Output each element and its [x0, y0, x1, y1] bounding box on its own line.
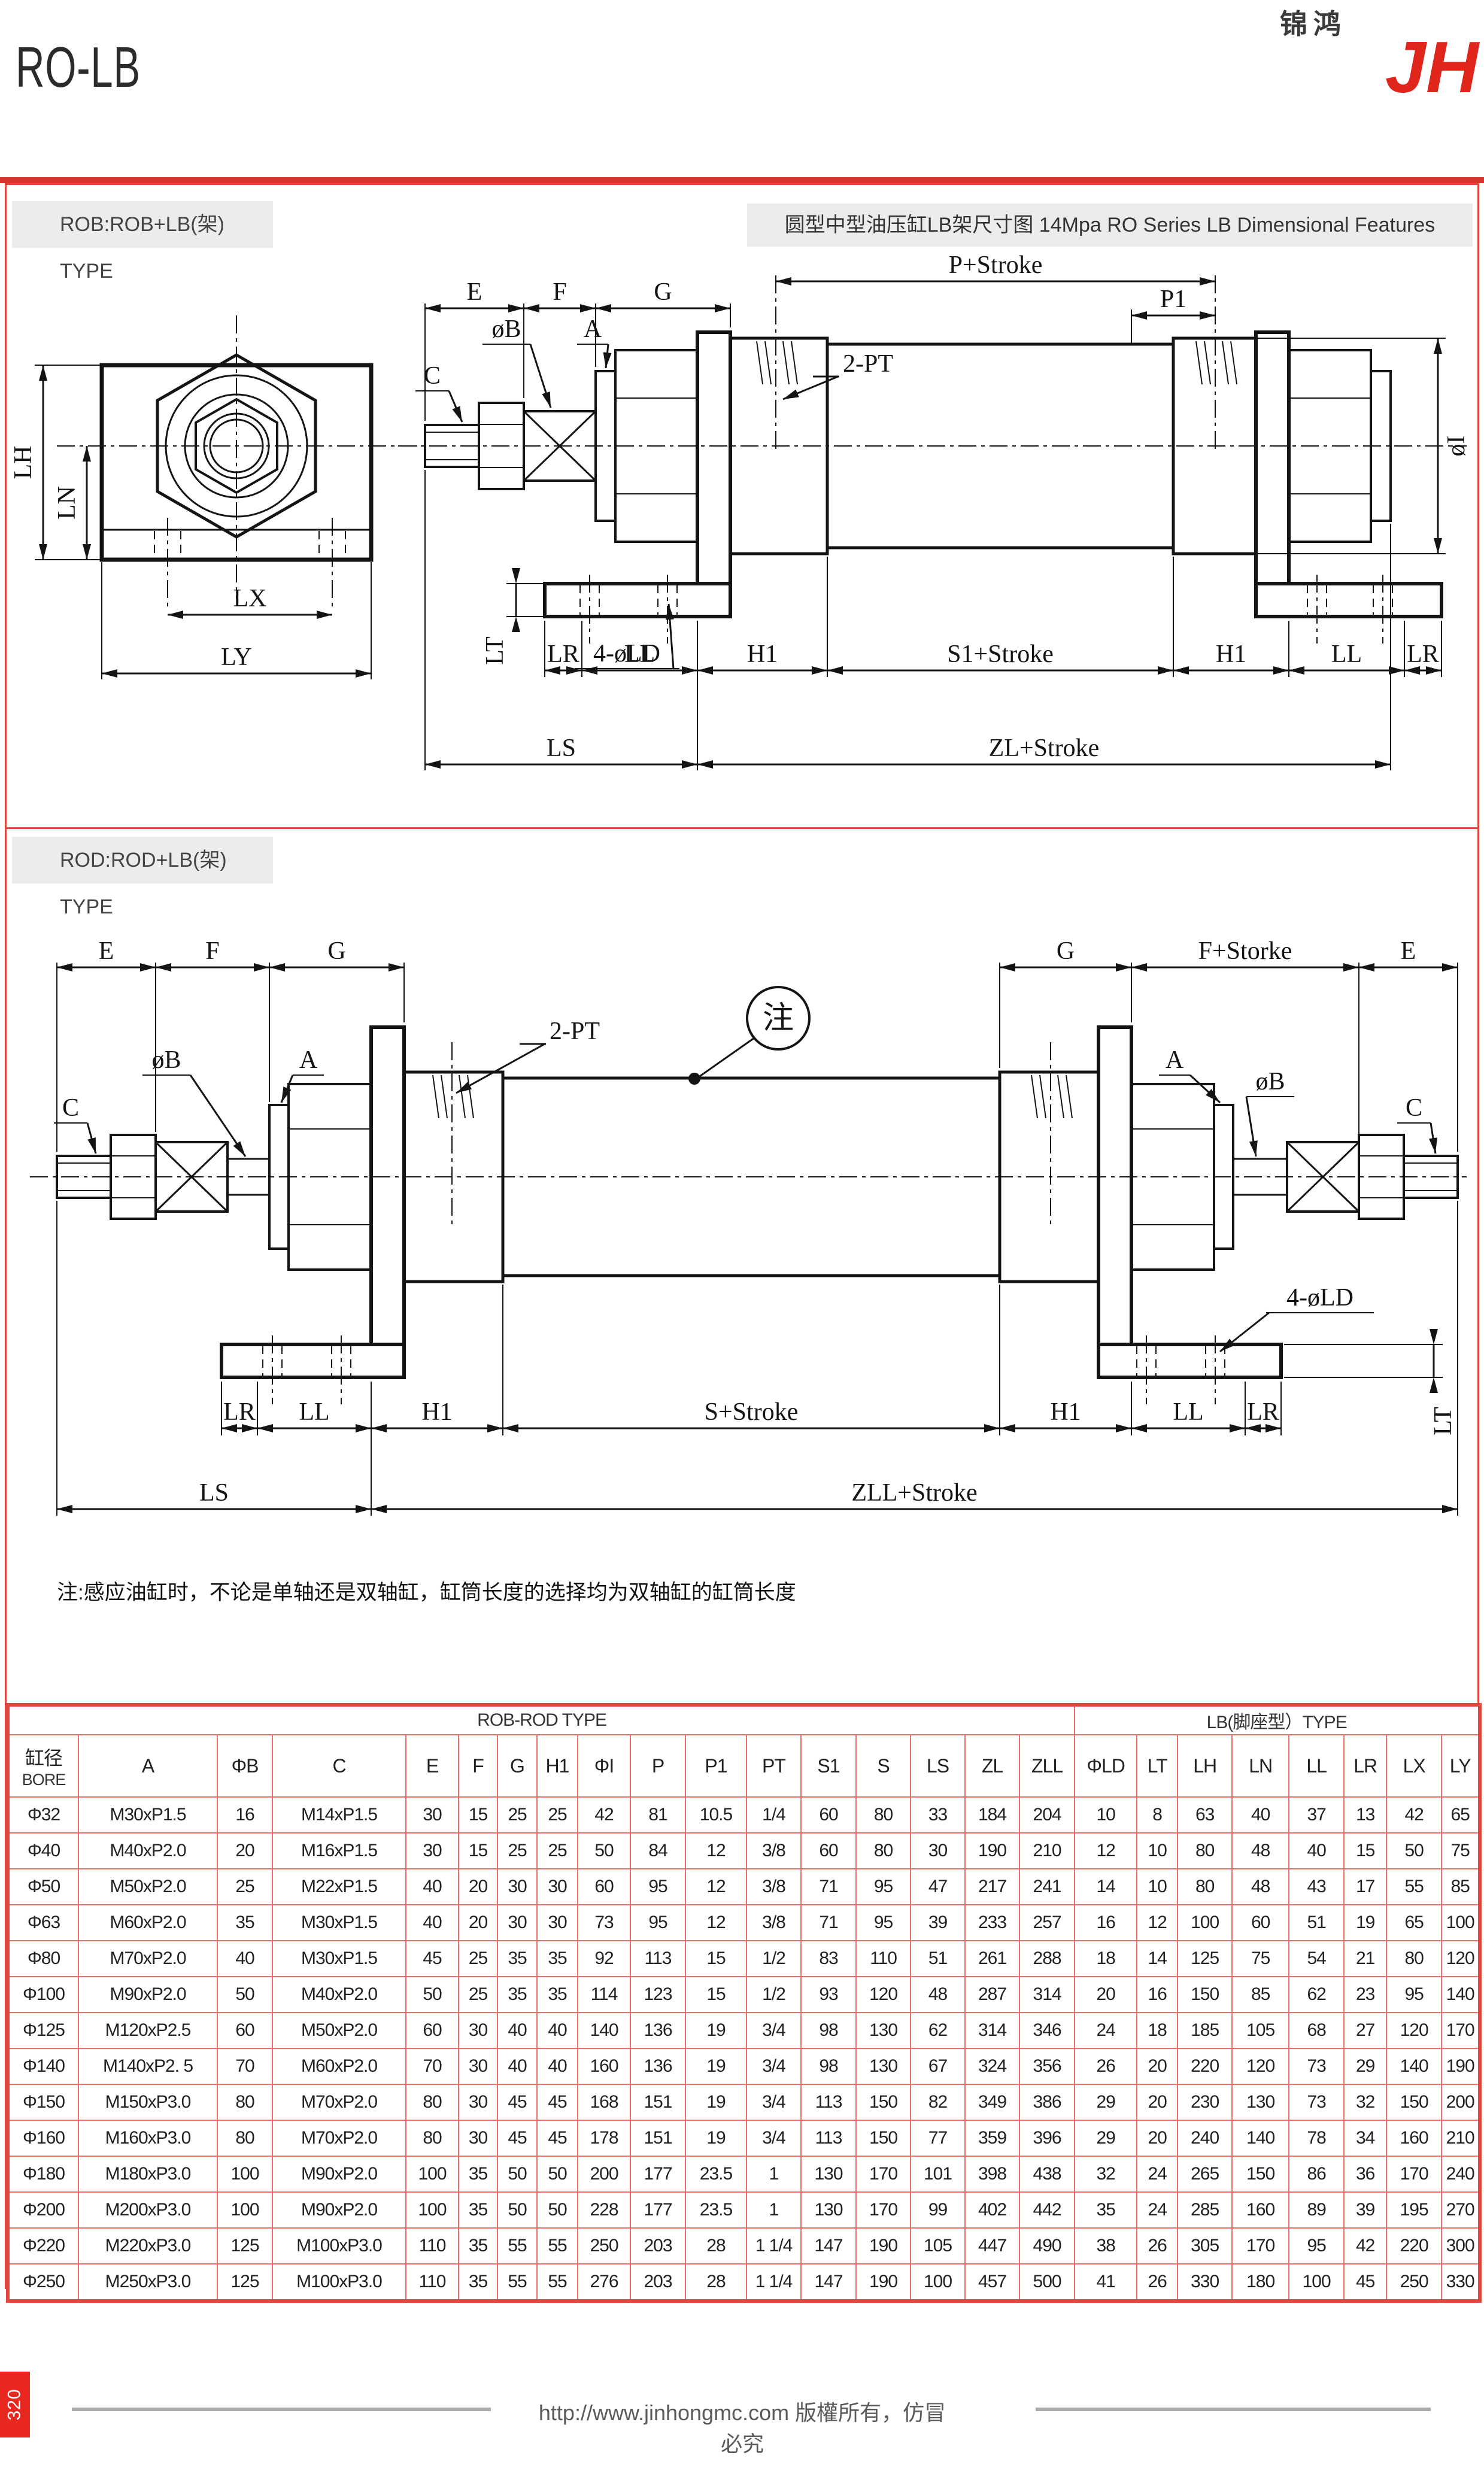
- table-cell: 99: [911, 2192, 965, 2228]
- table-cell: 177: [630, 2156, 685, 2192]
- table-cell: 30: [537, 1869, 578, 1905]
- table-cell: 51: [1289, 1905, 1344, 1941]
- table-cell: 62: [911, 2012, 965, 2048]
- dim-label: LR: [547, 640, 579, 668]
- table-cell: 98: [801, 2048, 856, 2084]
- table-cell: M120xP2.5: [78, 2012, 217, 2048]
- footer-rule-left: [72, 2408, 491, 2411]
- dim-label: C: [62, 1094, 79, 1122]
- table-cell: 130: [1232, 2084, 1289, 2120]
- table-cell: 217: [965, 1869, 1019, 1905]
- table-cell: 184: [965, 1797, 1019, 1833]
- table-cell: 80: [856, 1797, 911, 1833]
- bore-label-cn: 缸径: [10, 1743, 78, 1771]
- table-cell: 43: [1289, 1869, 1344, 1905]
- table-cell: 39: [911, 1905, 965, 1941]
- table-cell: 68: [1289, 2012, 1344, 2048]
- table-cell: 25: [459, 1941, 497, 1977]
- dim-label: P1: [1160, 286, 1186, 313]
- table-cell: 95: [856, 1869, 911, 1905]
- table-cell: 10.5: [685, 1797, 746, 1833]
- table-cell: 10: [1075, 1797, 1137, 1833]
- table-cell: Φ140: [8, 2048, 78, 2084]
- table-cell: 14: [1137, 1941, 1178, 1977]
- table-cell: 41: [1075, 2264, 1137, 2301]
- dim-label: 注: [763, 1001, 794, 1036]
- table-cell: 40: [537, 2012, 578, 2048]
- table-cell: M220xP3.0: [78, 2228, 217, 2264]
- table-cell: 20: [459, 1869, 497, 1905]
- table-cell: 12: [685, 1869, 746, 1905]
- table-cell: 3/8: [746, 1833, 801, 1869]
- column-header: LS: [911, 1735, 965, 1797]
- table-cell: 160: [578, 2048, 630, 2084]
- table-cell: 40: [497, 2048, 537, 2084]
- table-cell: 203: [630, 2264, 685, 2301]
- table-cell: 457: [965, 2264, 1019, 2301]
- table-cell: 16: [1137, 1977, 1178, 2012]
- table-cell: 28: [685, 2264, 746, 2301]
- table-cell: 25: [497, 1833, 537, 1869]
- table-cell: 490: [1019, 2228, 1075, 2264]
- column-header: ΦI: [578, 1735, 630, 1797]
- table-cell: 40: [1289, 1833, 1344, 1869]
- table-cell: 3/8: [746, 1869, 801, 1905]
- table-cell: 63: [1178, 1797, 1232, 1833]
- table-cell: 113: [630, 1941, 685, 1977]
- table-cell: 45: [1344, 2264, 1386, 2301]
- table-cell: 60: [578, 1869, 630, 1905]
- table-cell: 170: [856, 2192, 911, 2228]
- table-cell: 23: [1344, 1977, 1386, 2012]
- table-cell: 1/2: [746, 1941, 801, 1977]
- note-text: 注:感应油缸时，不论是单轴还是双轴缸，缸筒长度的选择均为双轴缸的缸筒长度: [57, 1576, 796, 1606]
- table-cell: Φ125: [8, 2012, 78, 2048]
- table-cell: 185: [1178, 2012, 1232, 2048]
- table-cell: 125: [217, 2228, 272, 2264]
- table-cell: M60xP2.0: [272, 2048, 406, 2084]
- table-cell: 151: [630, 2120, 685, 2156]
- dim-label: H1: [421, 1398, 452, 1426]
- table-cell: M14xP1.5: [272, 1797, 406, 1833]
- table-cell: 85: [1441, 1869, 1480, 1905]
- table-cell: M100xP3.0: [272, 2264, 406, 2301]
- table-cell: 30: [459, 2012, 497, 2048]
- table-cell: 93: [801, 1977, 856, 2012]
- table-cell: 200: [1441, 2084, 1480, 2120]
- table-cell: 55: [537, 2228, 578, 2264]
- table-cell: 54: [1289, 1941, 1344, 1977]
- table-cell: 120: [856, 1977, 911, 2012]
- table-cell: 82: [911, 2084, 965, 2120]
- table-cell: 25: [459, 1977, 497, 2012]
- table-cell: M160xP3.0: [78, 2120, 217, 2156]
- dim-label: 2-PT: [550, 1018, 600, 1045]
- table-cell: M70xP2.0: [272, 2120, 406, 2156]
- table-cell: 1 1/4: [746, 2264, 801, 2301]
- dim-label: A: [1166, 1046, 1184, 1074]
- table-cell: 147: [801, 2264, 856, 2301]
- table-cell: 220: [1178, 2048, 1232, 2084]
- table-cell: 60: [801, 1797, 856, 1833]
- column-header: S: [856, 1735, 911, 1797]
- dimension-table: ROB-ROD TYPELB(脚座型）TYPE缸径BOREAΦBCEFGH1ΦI…: [6, 1703, 1482, 2303]
- table-cell: 71: [801, 1905, 856, 1941]
- table-cell: 12: [1137, 1905, 1178, 1941]
- table-cell: 50: [537, 2192, 578, 2228]
- table-row: Φ160M160xP3.080M70xP2.080304545178151193…: [8, 2120, 1480, 2156]
- table-cell: 276: [578, 2264, 630, 2301]
- table-cell: 48: [1232, 1833, 1289, 1869]
- table-cell: 190: [965, 1833, 1019, 1869]
- table-cell: 32: [1075, 2156, 1137, 2192]
- table-cell: 110: [406, 2228, 459, 2264]
- table-cell: 45: [497, 2120, 537, 2156]
- table-cell: 8: [1137, 1797, 1178, 1833]
- table-cell: 26: [1137, 2228, 1178, 2264]
- table-group-header-rob-rod: ROB-ROD TYPE: [8, 1705, 1075, 1735]
- table-cell: 110: [856, 1941, 911, 1977]
- table-cell: 120: [1441, 1941, 1480, 1977]
- table-cell: 25: [537, 1797, 578, 1833]
- table-cell: 19: [685, 2120, 746, 2156]
- table-cell: 402: [965, 2192, 1019, 2228]
- table-cell: 23.5: [685, 2192, 746, 2228]
- column-header: E: [406, 1735, 459, 1797]
- table-cell: 71: [801, 1869, 856, 1905]
- column-header-bore: 缸径BORE: [8, 1735, 78, 1797]
- table-cell: 17: [1344, 1869, 1386, 1905]
- table-cell: 40: [497, 2012, 537, 2048]
- dim-label: E: [467, 278, 482, 306]
- table-cell: 35: [497, 1941, 537, 1977]
- table-cell: 30: [459, 2048, 497, 2084]
- table-cell: 330: [1441, 2264, 1480, 2301]
- table-cell: Φ250: [8, 2264, 78, 2301]
- table-row: Φ125M120xP2.560M50xP2.060304040140136193…: [8, 2012, 1480, 2048]
- table-cell: M40xP2.0: [272, 1977, 406, 2012]
- table-cell: 438: [1019, 2156, 1075, 2192]
- table-cell: 80: [217, 2120, 272, 2156]
- table-cell: 123: [630, 1977, 685, 2012]
- dim-label: LL: [299, 1398, 329, 1426]
- table-cell: 60: [406, 2012, 459, 2048]
- dim-label: øB: [151, 1046, 181, 1074]
- table-cell: M200xP3.0: [78, 2192, 217, 2228]
- table-cell: 15: [1344, 1833, 1386, 1869]
- column-header: F: [459, 1735, 497, 1797]
- table-cell: Φ200: [8, 2192, 78, 2228]
- table-cell: 50: [497, 2156, 537, 2192]
- table-cell: 26: [1075, 2048, 1137, 2084]
- table-cell: 42: [578, 1797, 630, 1833]
- table-cell: 113: [801, 2120, 856, 2156]
- table-cell: 73: [1289, 2048, 1344, 2084]
- table-cell: 21: [1344, 1941, 1386, 1977]
- dim-label: LY: [221, 643, 252, 671]
- table-cell: 98: [801, 2012, 856, 2048]
- table-cell: 45: [497, 2084, 537, 2120]
- table-row: Φ150M150xP3.080M70xP2.080304545168151193…: [8, 2084, 1480, 2120]
- table-cell: 15: [685, 1977, 746, 2012]
- table-cell: 65: [1441, 1797, 1480, 1833]
- section-label-rod: ROD:ROD+LB(架) TYPE: [12, 837, 273, 884]
- table-cell: 114: [578, 1977, 630, 2012]
- table-cell: 30: [459, 2084, 497, 2120]
- column-header: C: [272, 1735, 406, 1797]
- table-cell: 15: [459, 1797, 497, 1833]
- table-cell: Φ100: [8, 1977, 78, 2012]
- table-cell: 150: [856, 2084, 911, 2120]
- table-cell: 19: [685, 2084, 746, 2120]
- table-cell: 1: [746, 2192, 801, 2228]
- table-row: Φ63M60xP2.035M30xP1.5402030307395123/871…: [8, 1905, 1480, 1941]
- table-cell: 20: [1137, 2084, 1178, 2120]
- table-cell: 500: [1019, 2264, 1075, 2301]
- table-cell: 1/4: [746, 1797, 801, 1833]
- table-cell: 110: [406, 2264, 459, 2301]
- table-cell: 20: [1137, 2120, 1178, 2156]
- table-cell: 12: [685, 1905, 746, 1941]
- table-cell: 250: [578, 2228, 630, 2264]
- table-cell: 105: [911, 2228, 965, 2264]
- table-cell: 35: [459, 2228, 497, 2264]
- table-cell: 170: [1386, 2156, 1441, 2192]
- dim-label: LR: [1247, 1398, 1279, 1426]
- dim-label: C: [424, 362, 441, 390]
- table-cell: 240: [1178, 2120, 1232, 2156]
- dim-label: H1: [1050, 1398, 1081, 1426]
- table-cell: 15: [685, 1941, 746, 1977]
- table-cell: 356: [1019, 2048, 1075, 2084]
- table-cell: M16xP1.5: [272, 1833, 406, 1869]
- table-cell: 34: [1344, 2120, 1386, 2156]
- table-cell: 95: [630, 1869, 685, 1905]
- column-header: P1: [685, 1735, 746, 1797]
- table-cell: 60: [801, 1833, 856, 1869]
- table-cell: 30: [497, 1869, 537, 1905]
- table-cell: 136: [630, 2048, 685, 2084]
- table-cell: 140: [1386, 2048, 1441, 2084]
- dim-label: P+Stroke: [949, 251, 1043, 279]
- table-cell: Φ220: [8, 2228, 78, 2264]
- table-cell: 50: [578, 1833, 630, 1869]
- column-header: ΦLD: [1075, 1735, 1137, 1797]
- table-cell: 324: [965, 2048, 1019, 2084]
- table-cell: 3/8: [746, 1905, 801, 1941]
- dim-label: F: [205, 937, 219, 965]
- table-row: Φ50M50xP2.025M22xP1.5402030306095123/871…: [8, 1869, 1480, 1905]
- table-cell: 3/4: [746, 2084, 801, 2120]
- dim-label: LX: [233, 585, 267, 612]
- table-cell: 190: [856, 2228, 911, 2264]
- table-cell: 39: [1344, 2192, 1386, 2228]
- table-cell: 95: [856, 1905, 911, 1941]
- table-cell: 29: [1075, 2084, 1137, 2120]
- table-cell: 287: [965, 1977, 1019, 2012]
- table-cell: 80: [406, 2120, 459, 2156]
- column-header: A: [78, 1735, 217, 1797]
- table-cell: 130: [801, 2156, 856, 2192]
- table-cell: 80: [406, 2084, 459, 2120]
- page-title: RO-LB: [16, 35, 141, 101]
- table-cell: 95: [1386, 1977, 1441, 2012]
- table-cell: Φ80: [8, 1941, 78, 1977]
- column-header: LN: [1232, 1735, 1289, 1797]
- table-cell: M90xP2.0: [272, 2156, 406, 2192]
- dim-label: H1: [1216, 640, 1246, 668]
- dim-label: LL: [1173, 1398, 1203, 1426]
- table-cell: 89: [1289, 2192, 1344, 2228]
- table-cell: 100: [406, 2156, 459, 2192]
- dim-label: LR: [223, 1398, 256, 1426]
- column-header: LX: [1386, 1735, 1441, 1797]
- table-cell: 1: [746, 2156, 801, 2192]
- dim-label: F: [553, 278, 566, 306]
- dim-label: øI: [1443, 436, 1470, 457]
- rob-lb-diagram: LHLNLXLYøIEFGP+StrokeP1CøBA2-PT4-øLDLTLR…: [6, 248, 1478, 820]
- table-cell: 16: [217, 1797, 272, 1833]
- table-cell: 200: [578, 2156, 630, 2192]
- column-header: ZL: [965, 1735, 1019, 1797]
- table-cell: 30: [459, 2120, 497, 2156]
- table-cell: 241: [1019, 1869, 1075, 1905]
- table-cell: 386: [1019, 2084, 1075, 2120]
- table-cell: 288: [1019, 1941, 1075, 1977]
- column-header: P: [630, 1735, 685, 1797]
- table-cell: 101: [911, 2156, 965, 2192]
- table-cell: 40: [406, 1905, 459, 1941]
- table-cell: 160: [1386, 2120, 1441, 2156]
- column-header: H1: [537, 1735, 578, 1797]
- table-cell: 50: [537, 2156, 578, 2192]
- table-cell: 178: [578, 2120, 630, 2156]
- table-cell: 32: [1344, 2084, 1386, 2120]
- table-cell: 37: [1289, 1797, 1344, 1833]
- rod-lb-diagram: EFGGF+StorkeE注2-PTøBACAøBC4-øLDLTLRLLH1S…: [6, 890, 1478, 1565]
- table-cell: 35: [537, 1977, 578, 2012]
- table-cell: 35: [537, 1941, 578, 1977]
- table-cell: 35: [459, 2264, 497, 2301]
- table-cell: 314: [1019, 1977, 1075, 2012]
- table-cell: 30: [406, 1833, 459, 1869]
- table-cell: M90xP2.0: [78, 1977, 217, 2012]
- column-header: LY: [1441, 1735, 1480, 1797]
- table-cell: M70xP2.0: [78, 1941, 217, 1977]
- table-cell: 12: [685, 1833, 746, 1869]
- table-cell: M250xP3.0: [78, 2264, 217, 2301]
- table-cell: 18: [1075, 1941, 1137, 1977]
- table-cell: 77: [911, 2120, 965, 2156]
- table-cell: 28: [685, 2228, 746, 2264]
- table-cell: 100: [1178, 1905, 1232, 1941]
- dim-label: ZLL+Stroke: [851, 1479, 977, 1507]
- table-cell: 55: [497, 2264, 537, 2301]
- column-header: PT: [746, 1735, 801, 1797]
- dim-label: LN: [53, 486, 81, 520]
- table-cell: 30: [911, 1833, 965, 1869]
- table-cell: 130: [856, 2012, 911, 2048]
- table-cell: 75: [1441, 1833, 1480, 1869]
- table-cell: 100: [406, 2192, 459, 2228]
- table-cell: 396: [1019, 2120, 1075, 2156]
- footer-text: http://www.jinhongmc.com 版權所有，仿冒必究: [533, 2396, 952, 2458]
- table-cell: 35: [459, 2156, 497, 2192]
- table-cell: 36: [1344, 2156, 1386, 2192]
- table-cell: 67: [911, 2048, 965, 2084]
- dim-label: LT: [481, 636, 509, 664]
- table-cell: 75: [1232, 1941, 1289, 1977]
- table-cell: 100: [1441, 1905, 1480, 1941]
- dim-label: S+Stroke: [705, 1398, 799, 1426]
- table-cell: 314: [965, 2012, 1019, 2048]
- dim-label: G: [327, 937, 345, 965]
- table-cell: 20: [217, 1833, 272, 1869]
- table-header-row: 缸径BOREAΦBCEFGH1ΦIPP1PTS1SLSZLZLLΦLDLTLHL…: [8, 1735, 1480, 1797]
- dim-label: LR: [1407, 640, 1439, 668]
- table-cell: 105: [1232, 2012, 1289, 2048]
- table-cell: 150: [1232, 2156, 1289, 2192]
- table-cell: Φ180: [8, 2156, 78, 2192]
- table-cell: 19: [685, 2048, 746, 2084]
- table-cell: 25: [537, 1833, 578, 1869]
- table-cell: 140: [1232, 2120, 1289, 2156]
- table-cell: 203: [630, 2228, 685, 2264]
- table-cell: 130: [856, 2048, 911, 2084]
- table-cell: 83: [801, 1941, 856, 1977]
- table-cell: 100: [217, 2156, 272, 2192]
- dim-label: 4-øLD: [1286, 1284, 1353, 1312]
- dim-label: øB: [491, 315, 521, 343]
- table-cell: 23.5: [685, 2156, 746, 2192]
- table-cell: 14: [1075, 1869, 1137, 1905]
- table-cell: Φ160: [8, 2120, 78, 2156]
- table-cell: 47: [911, 1869, 965, 1905]
- dim-label: LL: [1331, 640, 1362, 668]
- dim-label: ZL+Stroke: [989, 734, 1100, 762]
- table-cell: 40: [537, 2048, 578, 2084]
- table-cell: 359: [965, 2120, 1019, 2156]
- table-cell: 170: [1441, 2012, 1480, 2048]
- table-cell: 151: [630, 2084, 685, 2120]
- table-cell: 26: [1137, 2264, 1178, 2301]
- table-cell: 300: [1441, 2228, 1480, 2264]
- table-cell: 40: [217, 1941, 272, 1977]
- table-cell: 349: [965, 2084, 1019, 2120]
- bore-label-en: BORE: [10, 1771, 78, 1789]
- table-cell: 204: [1019, 1797, 1075, 1833]
- table-cell: 10: [1137, 1833, 1178, 1869]
- table-cell: 113: [801, 2084, 856, 2120]
- table-cell: 180: [1232, 2264, 1289, 2301]
- table-cell: 120: [1232, 2048, 1289, 2084]
- table-cell: 3/4: [746, 2048, 801, 2084]
- table-cell: 265: [1178, 2156, 1232, 2192]
- table-cell: 24: [1075, 2012, 1137, 2048]
- table-cell: 29: [1344, 2048, 1386, 2084]
- table-cell: 125: [217, 2264, 272, 2301]
- table-cell: 120: [1386, 2012, 1441, 2048]
- logo-jh-mark: JH: [1269, 38, 1479, 96]
- table-cell: 24: [1137, 2156, 1178, 2192]
- table-cell: 220: [1386, 2228, 1441, 2264]
- table-cell: 81: [630, 1797, 685, 1833]
- table-cell: 62: [1289, 1977, 1344, 2012]
- table-cell: 45: [406, 1941, 459, 1977]
- dim-label: LS: [547, 734, 576, 762]
- column-header: LL: [1289, 1735, 1344, 1797]
- table-cell: 95: [1289, 2228, 1344, 2264]
